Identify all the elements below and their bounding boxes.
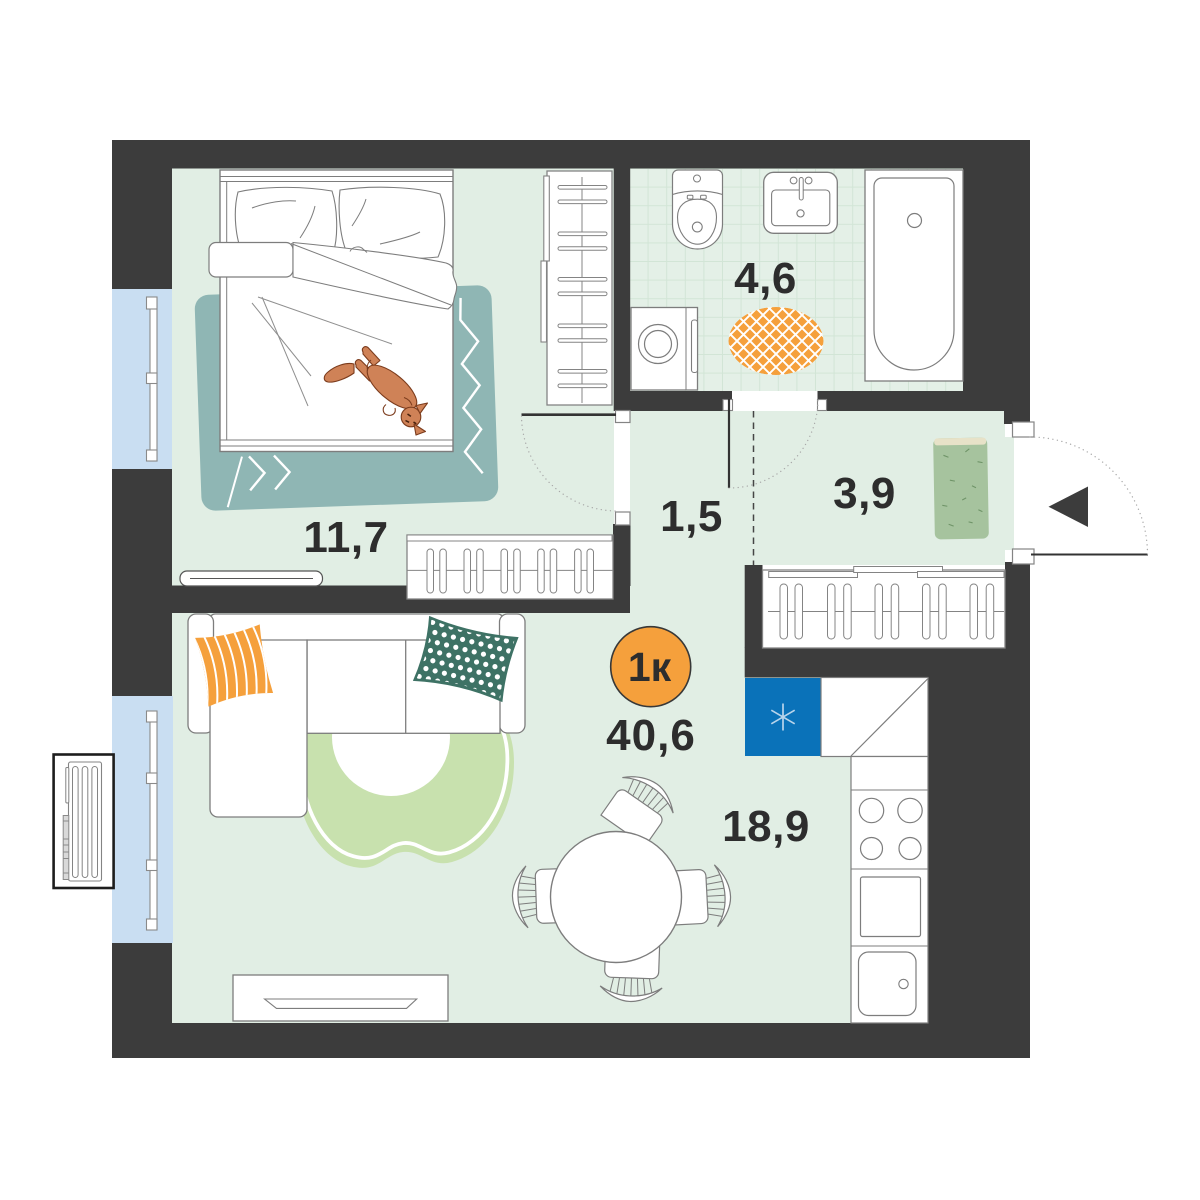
svg-text:4,6: 4,6 — [734, 254, 797, 303]
svg-text:1к: 1к — [628, 644, 672, 690]
svg-text:40,6: 40,6 — [606, 711, 696, 760]
svg-text:18,9: 18,9 — [722, 802, 810, 851]
svg-text:3,9: 3,9 — [833, 469, 896, 518]
svg-text:11,7: 11,7 — [303, 513, 388, 562]
svg-text:1,5: 1,5 — [660, 492, 723, 541]
